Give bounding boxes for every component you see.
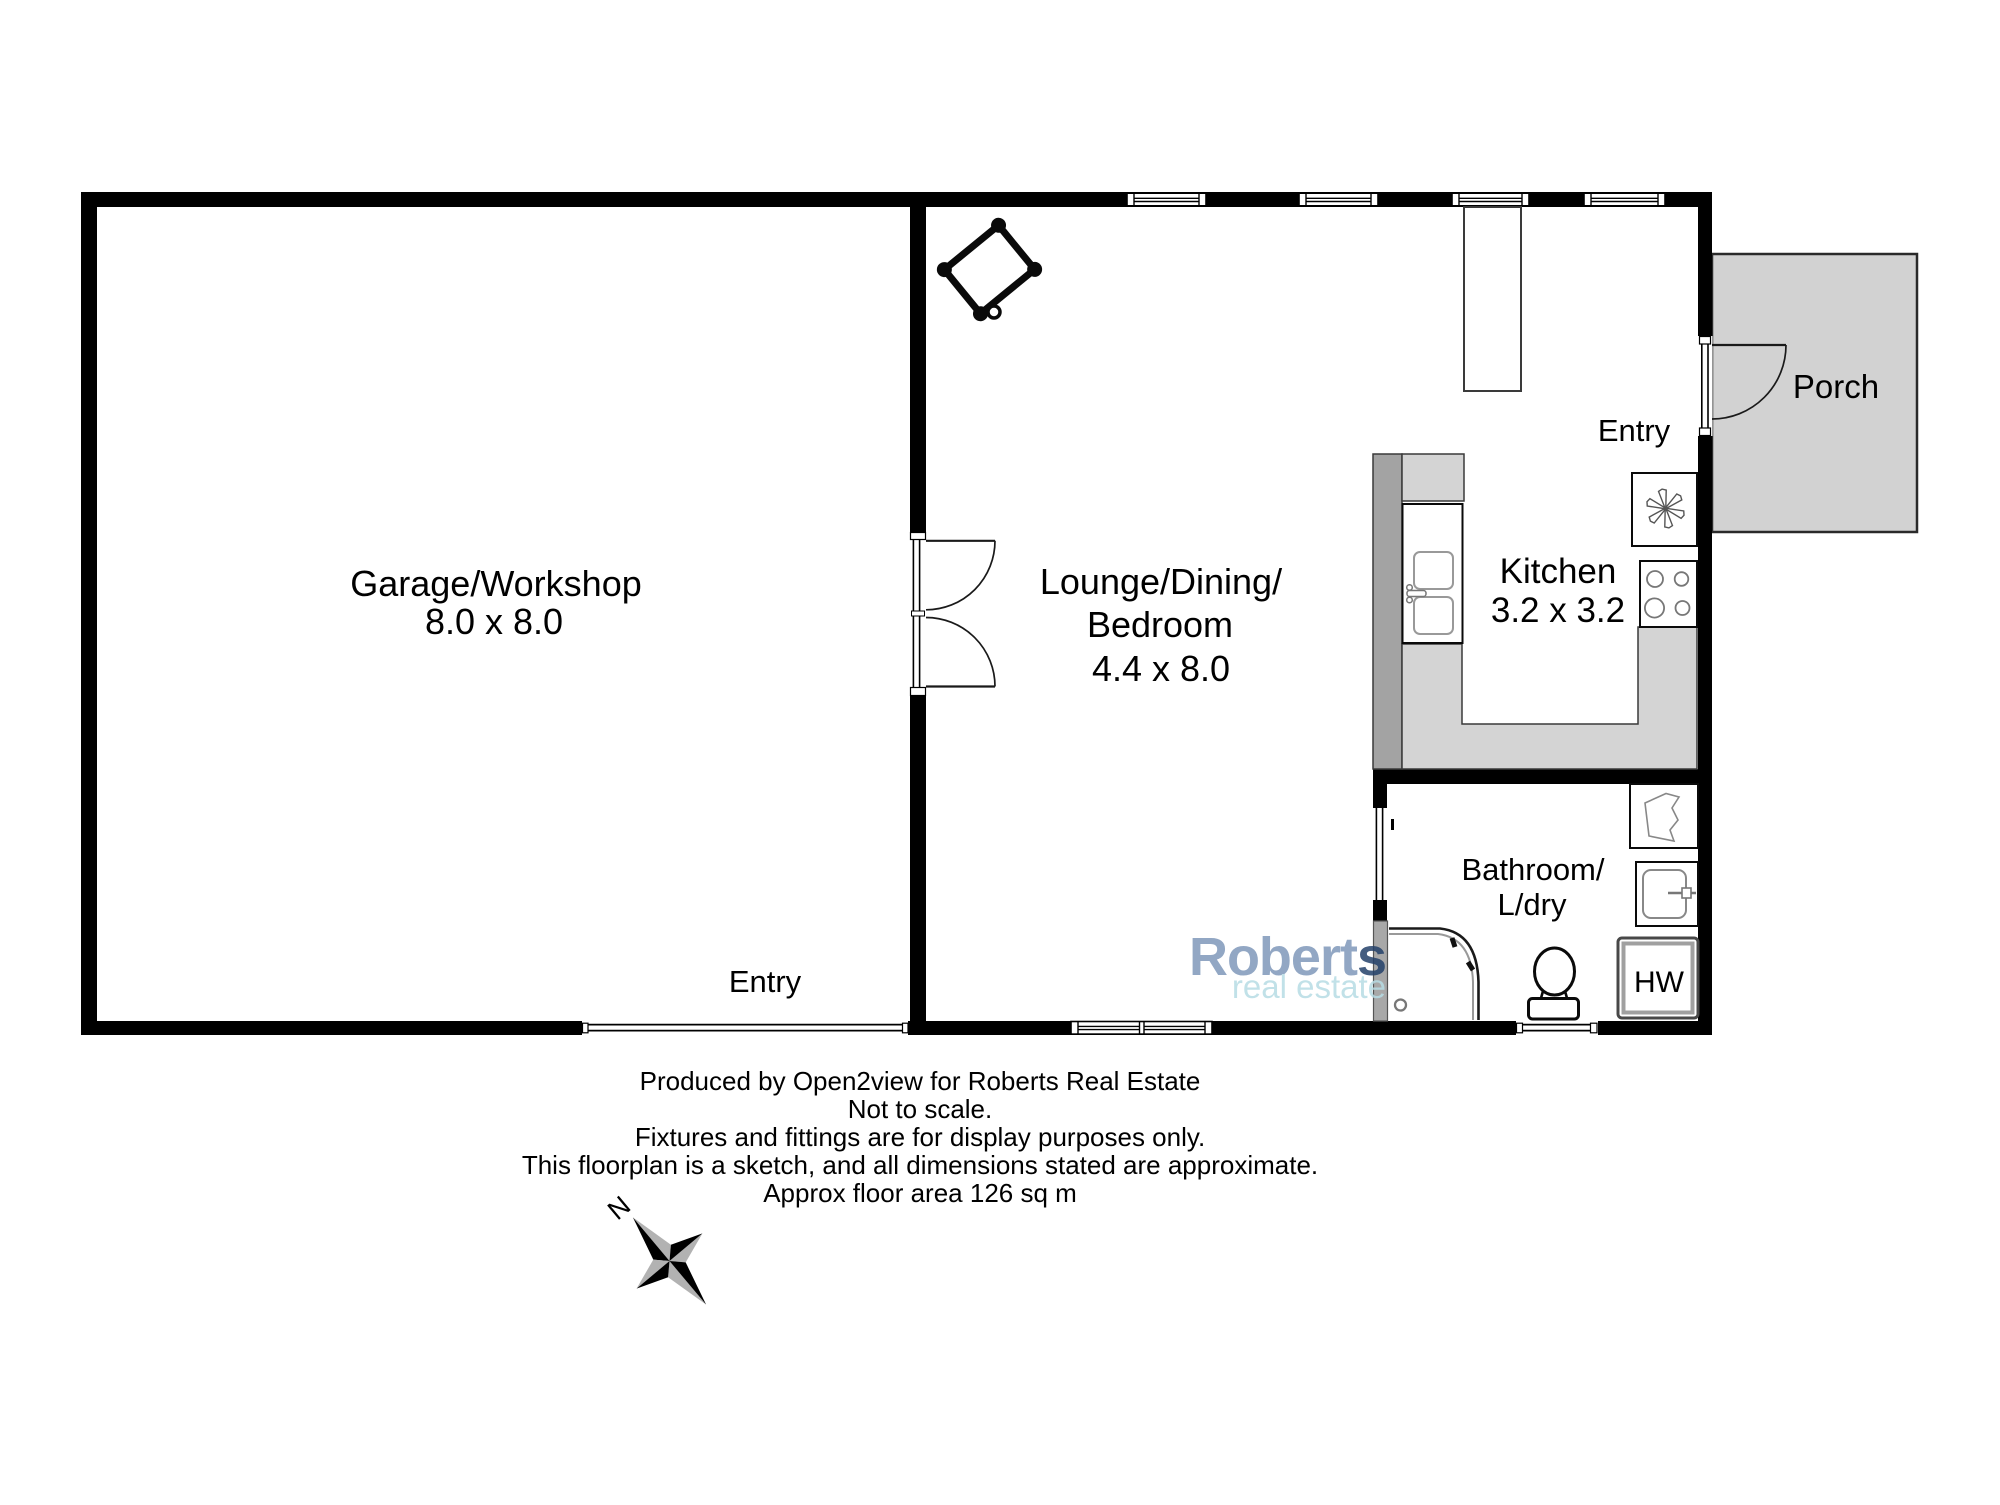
svg-text:Entry: Entry	[1598, 413, 1671, 448]
svg-text:Lounge/Dining/: Lounge/Dining/	[1040, 561, 1282, 602]
svg-text:3.2 x 3.2: 3.2 x 3.2	[1491, 591, 1625, 630]
svg-text:Entry: Entry	[729, 964, 802, 999]
svg-text:HW: HW	[1634, 966, 1685, 999]
svg-text:Kitchen: Kitchen	[1500, 552, 1617, 591]
svg-text:Bathroom/: Bathroom/	[1461, 852, 1604, 887]
svg-text:This floorplan is a sketch, an: This floorplan is a sketch, and all dime…	[522, 1150, 1318, 1180]
svg-text:4.4 x 8.0: 4.4 x 8.0	[1092, 648, 1230, 689]
svg-text:Bedroom: Bedroom	[1087, 604, 1233, 645]
svg-text:Fixtures and fittings are for: Fixtures and fittings are for display pu…	[635, 1122, 1205, 1152]
svg-text:real estate: real estate	[1232, 968, 1386, 1005]
svg-text:8.0 x 8.0: 8.0 x 8.0	[425, 601, 563, 642]
svg-text:Garage/Workshop: Garage/Workshop	[350, 563, 641, 604]
svg-text:L/dry: L/dry	[1498, 887, 1567, 922]
svg-text:Produced by Open2view for Robe: Produced by Open2view for Roberts Real E…	[640, 1066, 1201, 1096]
svg-text:Approx floor area 126 sq m: Approx floor area 126 sq m	[763, 1178, 1077, 1208]
svg-text:Not to scale.: Not to scale.	[848, 1094, 993, 1124]
svg-text:Porch: Porch	[1793, 368, 1879, 405]
